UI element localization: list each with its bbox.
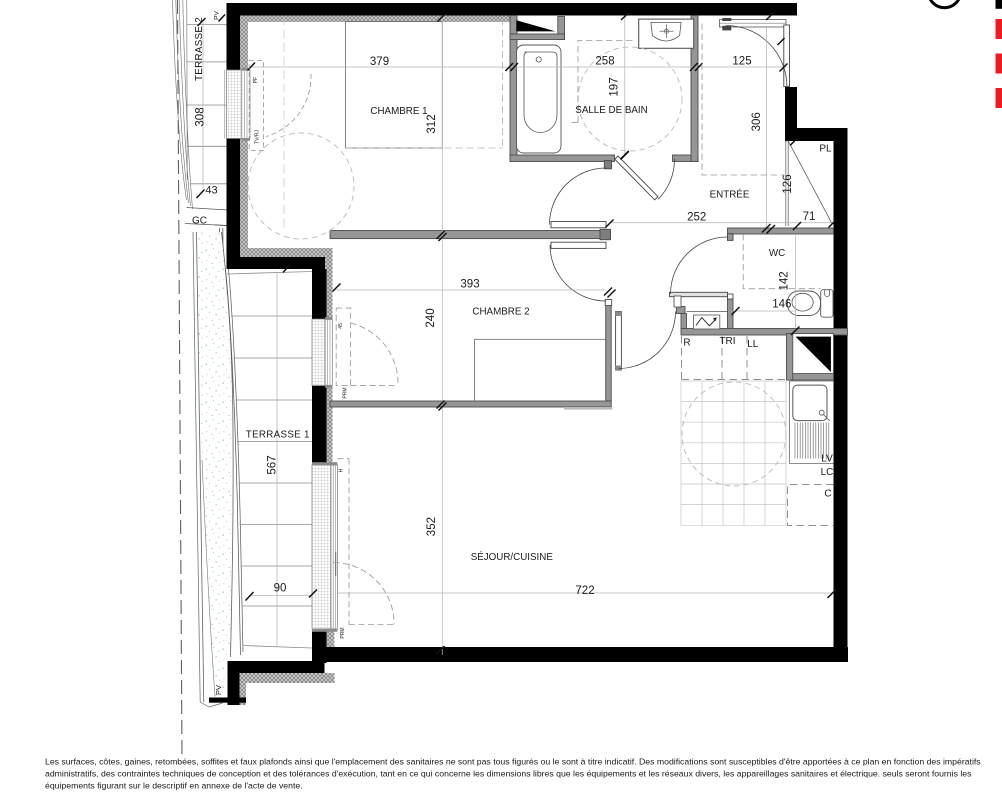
svg-text:306: 306: [751, 112, 763, 131]
svg-text:PV: PV: [214, 11, 221, 20]
svg-text:GC: GC: [192, 216, 207, 227]
svg-text:197: 197: [609, 77, 621, 96]
svg-text:PL: PL: [819, 144, 832, 155]
svg-text:TRI: TRI: [719, 336, 735, 347]
svg-text:Les surfaces, côtes, gaines, r: Les surfaces, côtes, gaines, retombées, …: [45, 757, 981, 767]
svg-text:LC: LC: [821, 467, 834, 478]
svg-text:ENTRÉE: ENTRÉE: [710, 190, 750, 201]
svg-text:CHAMBRE 2: CHAMBRE 2: [472, 307, 529, 318]
svg-text:142: 142: [779, 271, 791, 290]
svg-text:146: 146: [772, 298, 791, 310]
svg-text:352: 352: [426, 517, 438, 536]
svg-text:393: 393: [460, 278, 479, 290]
svg-text:308: 308: [195, 107, 207, 126]
svg-text:43: 43: [205, 185, 217, 197]
svg-text:312: 312: [426, 114, 438, 133]
svg-text:258: 258: [595, 56, 614, 68]
svg-text:SÉJOUR/CUISINE: SÉJOUR/CUISINE: [471, 552, 554, 563]
svg-text:71: 71: [803, 211, 816, 223]
svg-text:125: 125: [732, 56, 751, 68]
svg-text:252: 252: [687, 211, 706, 223]
svg-text:TERRASSE 2: TERRASSE 2: [194, 17, 205, 81]
svg-text:PRM: PRM: [340, 627, 346, 638]
svg-text:LV: LV: [821, 454, 833, 465]
svg-text:LL: LL: [747, 339, 759, 350]
svg-text:TERRASSE 1: TERRASSE 1: [246, 430, 310, 441]
svg-text:TV/RJ: TV/RJ: [254, 130, 260, 144]
svg-text:C: C: [824, 489, 831, 500]
svg-text:PRM: PRM: [343, 387, 349, 398]
svg-text:administratifs, des contrainte: administratifs, des contraintes techniqu…: [45, 769, 972, 779]
svg-text:45: 45: [338, 323, 344, 329]
svg-text:CHAMBRE 1: CHAMBRE 1: [370, 106, 427, 117]
svg-text:379: 379: [370, 56, 389, 68]
svg-text:WC: WC: [769, 248, 785, 259]
svg-text:722: 722: [575, 585, 594, 597]
svg-text:SALLE DE BAIN: SALLE DE BAIN: [575, 105, 647, 116]
svg-text:126: 126: [782, 174, 794, 193]
svg-text:H: H: [339, 468, 345, 472]
svg-text:équipements figurant sur le de: équipements figurant sur le descriptif e…: [45, 781, 303, 791]
svg-text:PV: PV: [214, 685, 223, 695]
svg-text:PF: PF: [253, 77, 259, 83]
svg-text:R: R: [683, 338, 690, 349]
svg-text:240: 240: [425, 308, 437, 327]
svg-text:90: 90: [274, 583, 287, 595]
svg-text:567: 567: [267, 455, 279, 474]
